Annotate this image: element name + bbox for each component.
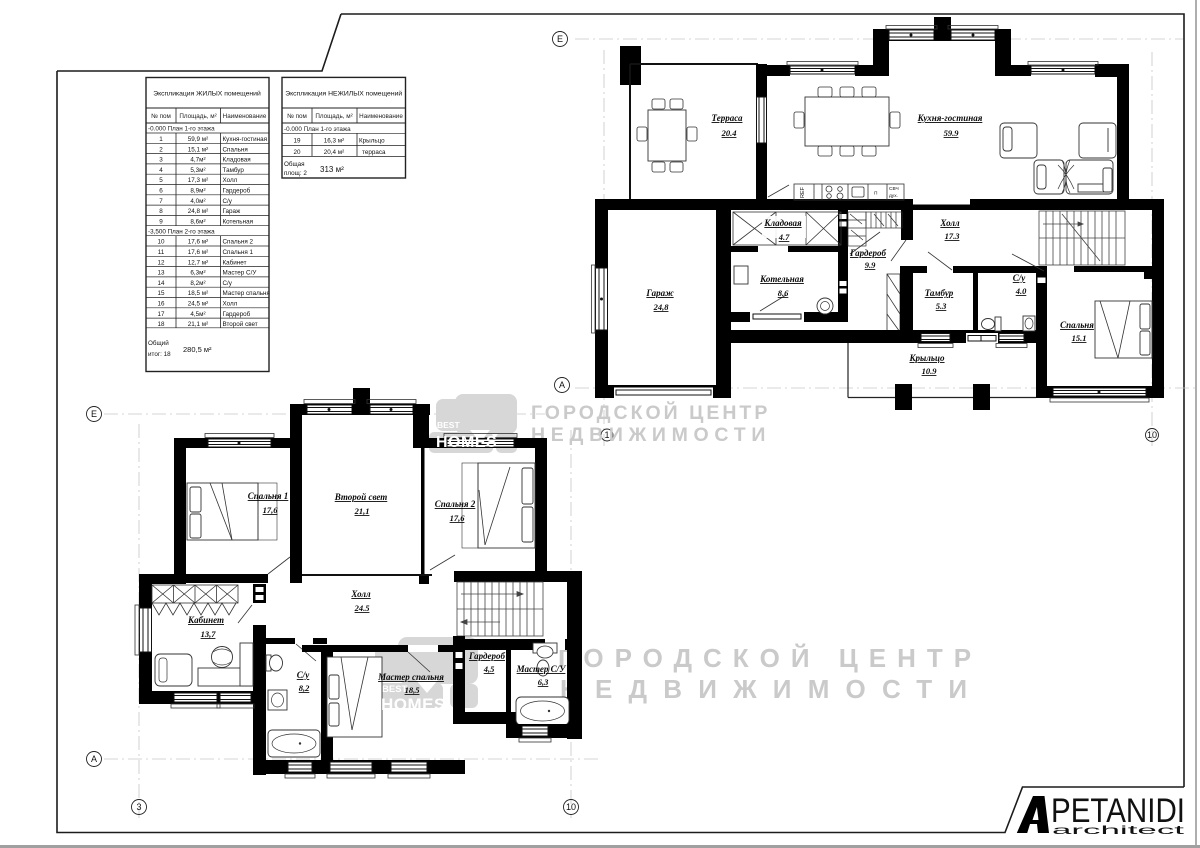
svg-text:Гардероб: Гардероб bbox=[468, 651, 506, 661]
svg-text:8,6м²: 8,6м² bbox=[190, 218, 205, 225]
svg-text:12: 12 bbox=[157, 259, 165, 266]
svg-text:20,4 м²: 20,4 м² bbox=[324, 149, 344, 156]
svg-text:6,3: 6,3 bbox=[538, 677, 549, 687]
svg-text:8.6: 8.6 bbox=[778, 288, 789, 298]
svg-text:3: 3 bbox=[136, 802, 141, 812]
svg-text:Крыльцо: Крыльцо bbox=[359, 138, 385, 145]
svg-text:15.1: 15.1 bbox=[1072, 333, 1087, 343]
svg-text:10: 10 bbox=[566, 802, 576, 812]
svg-text:Спальня: Спальня bbox=[223, 146, 248, 153]
svg-text:8: 8 bbox=[159, 208, 163, 215]
svg-text:Мастер спальня: Мастер спальня bbox=[377, 672, 444, 682]
svg-text:4,5м²: 4,5м² bbox=[190, 311, 205, 318]
svg-text:С/у: С/у bbox=[1013, 273, 1027, 283]
svg-text:Мастер С/У: Мастер С/У bbox=[516, 664, 567, 674]
svg-text:Гардероб: Гардероб bbox=[223, 187, 251, 195]
svg-text:№ пом: № пом bbox=[151, 113, 171, 120]
svg-text:20: 20 bbox=[293, 149, 301, 156]
svg-text:15: 15 bbox=[157, 290, 165, 297]
svg-text:8,2м²: 8,2м² bbox=[190, 280, 205, 287]
svg-text:Кладовая: Кладовая bbox=[763, 218, 802, 228]
svg-text:С/у: С/у bbox=[297, 670, 311, 680]
svg-text:П: П bbox=[874, 191, 878, 197]
svg-text:6,3м²: 6,3м² bbox=[190, 270, 205, 277]
svg-text:Общий: Общий bbox=[148, 339, 169, 347]
svg-text:Спальня 1: Спальня 1 bbox=[248, 491, 289, 501]
svg-text:6: 6 bbox=[159, 188, 163, 195]
svg-text:Тамбур: Тамбур bbox=[925, 288, 954, 298]
svg-text:Мастер спальня: Мастер спальня bbox=[223, 290, 270, 297]
svg-text:СВЧ: СВЧ bbox=[889, 186, 899, 192]
svg-text:Наименование: Наименование bbox=[223, 113, 267, 120]
svg-text:8,9м²: 8,9м² bbox=[190, 188, 205, 195]
svg-text:16,3 м²: 16,3 м² bbox=[324, 138, 344, 145]
svg-text:9: 9 bbox=[159, 218, 163, 225]
svg-text:Холл: Холл bbox=[939, 218, 960, 228]
svg-text:Котельная: Котельная bbox=[223, 218, 253, 225]
svg-text:17: 17 bbox=[157, 311, 165, 318]
svg-text:313 м²: 313 м² bbox=[320, 165, 344, 174]
svg-text:-0.000 План 1-го этажа: -0.000 План 1-го этажа bbox=[148, 126, 215, 133]
svg-text:17,6 м²: 17,6 м² bbox=[188, 249, 208, 256]
svg-text:Площадь, м²: Площадь, м² bbox=[315, 113, 352, 120]
svg-text:4: 4 bbox=[159, 167, 163, 174]
svg-text:Спальня: Спальня bbox=[1060, 320, 1094, 330]
svg-text:Тамбур: Тамбур bbox=[223, 166, 245, 174]
svg-text:Крыльцо: Крыльцо bbox=[908, 353, 945, 363]
svg-text:Наименование: Наименование bbox=[359, 113, 403, 120]
svg-text:24,5 м²: 24,5 м² bbox=[188, 301, 208, 308]
svg-text:REF: REF bbox=[800, 186, 806, 198]
svg-text:2: 2 bbox=[159, 146, 163, 153]
svg-text:Кухня-гостиная: Кухня-гостиная bbox=[223, 136, 268, 143]
svg-text:21,1: 21,1 bbox=[354, 506, 370, 516]
svg-text:Холл: Холл bbox=[223, 177, 238, 184]
svg-text:20.4: 20.4 bbox=[721, 128, 737, 138]
svg-text:Второй свет: Второй свет bbox=[223, 320, 258, 328]
svg-text:дух.: дух. bbox=[889, 194, 898, 199]
svg-text:4,5: 4,5 bbox=[483, 664, 495, 674]
svg-text:4,7м²: 4,7м² bbox=[190, 157, 205, 164]
svg-text:24,8 м²: 24,8 м² bbox=[188, 208, 208, 215]
svg-text:Кабинет: Кабинет bbox=[187, 615, 224, 625]
svg-text:Площадь, м²: Площадь, м² bbox=[179, 113, 216, 120]
svg-text:17,6: 17,6 bbox=[450, 513, 466, 523]
svg-text:Спальня 2: Спальня 2 bbox=[435, 499, 476, 509]
svg-text:Гардероб: Гардероб bbox=[223, 310, 251, 318]
svg-text:А: А bbox=[91, 754, 97, 764]
svg-text:8,2: 8,2 bbox=[299, 683, 310, 693]
svg-text:17,3 м²: 17,3 м² bbox=[188, 177, 208, 184]
svg-text:Кухня-гостиная: Кухня-гостиная bbox=[917, 113, 983, 123]
svg-text:17,6 м²: 17,6 м² bbox=[188, 239, 208, 246]
svg-text:1: 1 bbox=[159, 136, 163, 143]
svg-text:17,6: 17,6 bbox=[263, 505, 279, 515]
svg-text:13,7: 13,7 bbox=[201, 629, 217, 639]
svg-text:3: 3 bbox=[159, 157, 163, 164]
svg-text:7: 7 bbox=[159, 198, 163, 205]
svg-text:14: 14 bbox=[157, 280, 165, 287]
svg-text:21,1 м²: 21,1 м² bbox=[188, 321, 208, 328]
svg-text:Экспликация ЖИЛЫХ помещений: Экспликация ЖИЛЫХ помещений bbox=[153, 90, 261, 98]
svg-text:4.7: 4.7 bbox=[778, 232, 790, 242]
svg-text:5: 5 bbox=[159, 177, 163, 184]
svg-text:BEST: BEST bbox=[382, 684, 408, 695]
svg-text:Общая: Общая bbox=[284, 160, 305, 168]
svg-text:Спальня 2: Спальня 2 bbox=[223, 239, 254, 246]
svg-text:59.9: 59.9 bbox=[944, 128, 960, 138]
svg-text:НЕДВИЖИМОСТИ: НЕДВИЖИМОСТИ bbox=[531, 424, 771, 446]
svg-text:10: 10 bbox=[1147, 430, 1157, 440]
svg-text:15,1 м²: 15,1 м² bbox=[188, 146, 208, 153]
svg-text:17.3: 17.3 bbox=[945, 231, 961, 241]
svg-text:11: 11 bbox=[158, 249, 165, 256]
svg-text:Экспликация НЕЖИЛЫХ помещений: Экспликация НЕЖИЛЫХ помещений bbox=[285, 90, 402, 98]
svg-text:-0.000 План 1-го этажа: -0.000 План 1-го этажа bbox=[284, 126, 351, 133]
svg-text:13: 13 bbox=[157, 270, 165, 277]
svg-text:12,7 м²: 12,7 м² bbox=[188, 259, 208, 266]
svg-text:4.0: 4.0 bbox=[1015, 286, 1027, 296]
svg-text:Гараж: Гараж bbox=[645, 288, 674, 298]
svg-text:5.3: 5.3 bbox=[936, 301, 947, 311]
svg-text:Е: Е bbox=[557, 34, 563, 44]
svg-text:24.5: 24.5 bbox=[354, 603, 371, 613]
svg-text:С/у: С/у bbox=[223, 198, 233, 205]
svg-text:4,0м²: 4,0м² bbox=[190, 198, 205, 205]
svg-text:10.9: 10.9 bbox=[922, 366, 938, 376]
svg-text:Терраса: Терраса bbox=[712, 113, 743, 123]
svg-text:Кладовая: Кладовая bbox=[223, 157, 251, 164]
svg-text:BEST: BEST bbox=[437, 420, 460, 430]
svg-text:Кабинет: Кабинет bbox=[223, 258, 247, 266]
svg-text:А: А bbox=[559, 380, 565, 390]
svg-text:№ пом: № пом bbox=[287, 113, 307, 120]
svg-text:терраса: терраса bbox=[362, 149, 386, 156]
svg-text:architect: architect bbox=[1052, 823, 1186, 837]
svg-text:Е: Е bbox=[91, 409, 97, 419]
svg-text:280,5 м²: 280,5 м² bbox=[183, 345, 212, 354]
svg-text:ГОРОДСКОЙ ЦЕНТР: ГОРОДСКОЙ ЦЕНТР bbox=[558, 643, 982, 673]
svg-text:Котельная: Котельная bbox=[759, 274, 804, 284]
svg-text:9.9: 9.9 bbox=[865, 260, 876, 270]
svg-text:59,9 м²: 59,9 м² bbox=[188, 136, 208, 143]
svg-text:С/у: С/у bbox=[223, 280, 233, 287]
svg-text:HOMES: HOMES bbox=[381, 695, 446, 714]
svg-text:19: 19 bbox=[293, 138, 301, 145]
svg-text:18: 18 bbox=[157, 321, 165, 328]
svg-text:ГОРОДСКОЙ ЦЕНТР: ГОРОДСКОЙ ЦЕНТР bbox=[531, 400, 770, 424]
svg-text:Мастер С/У: Мастер С/У bbox=[223, 270, 258, 277]
svg-text:НЕДВИЖИМОСТИ: НЕДВИЖИМОСТИ bbox=[560, 674, 983, 704]
svg-text:24,8: 24,8 bbox=[653, 302, 670, 312]
svg-text:Холл: Холл bbox=[350, 589, 371, 599]
svg-text:18,5 м²: 18,5 м² bbox=[188, 290, 208, 297]
svg-text:Второй свет: Второй свет bbox=[334, 492, 388, 502]
svg-text:5,3м²: 5,3м² bbox=[190, 167, 205, 174]
svg-text:Гардероб: Гардероб bbox=[849, 248, 887, 258]
svg-text:площ: 2: площ: 2 bbox=[284, 170, 307, 177]
svg-text:Холл: Холл bbox=[223, 301, 238, 308]
svg-text:Гараж: Гараж bbox=[223, 208, 242, 215]
svg-text:Спальня 1: Спальня 1 bbox=[223, 249, 254, 256]
svg-text:HOMES: HOMES bbox=[436, 434, 497, 451]
svg-text:16: 16 bbox=[157, 301, 165, 308]
svg-text:итог: 18: итог: 18 bbox=[148, 351, 171, 358]
svg-text:-3,500 План 2-го этажа: -3,500 План 2-го этажа bbox=[148, 228, 215, 235]
svg-text:10: 10 bbox=[157, 239, 165, 246]
